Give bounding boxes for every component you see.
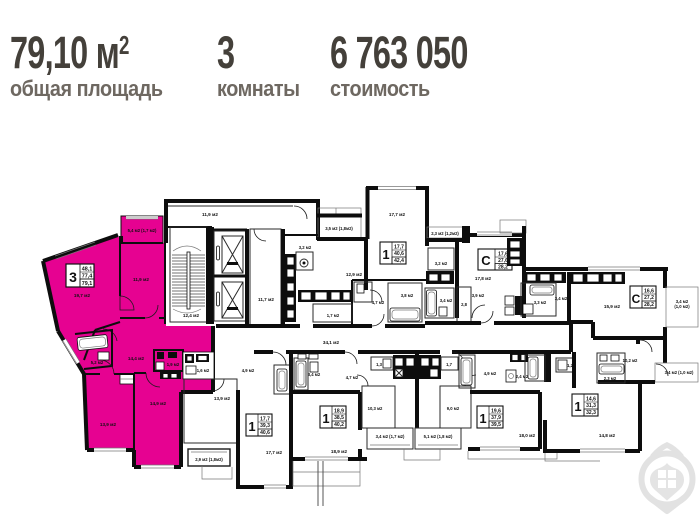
svg-text:3,4 м2 (1,7 м2): 3,4 м2 (1,7 м2) [376,434,405,439]
svg-text:1,7 м2: 1,7 м2 [327,313,340,318]
svg-text:38,5: 38,5 [334,415,344,421]
svg-text:2,8: 2,8 [461,302,467,307]
svg-text:16,6: 16,6 [644,289,654,295]
svg-text:1: 1 [479,411,486,426]
svg-text:(1,0 м2): (1,0 м2) [674,304,690,309]
svg-text:12,4 м2: 12,4 м2 [183,313,200,318]
svg-text:18,9: 18,9 [334,409,344,415]
svg-text:40,6: 40,6 [260,430,270,436]
svg-text:4,9 м2: 4,9 м2 [484,371,497,376]
svg-text:1: 1 [322,411,329,426]
svg-text:39,5: 39,5 [491,422,501,428]
svg-text:С: С [481,253,491,268]
svg-text:10,3 м2: 10,3 м2 [368,406,383,411]
svg-text:37,9: 37,9 [491,415,501,421]
svg-text:17,7 м2: 17,7 м2 [266,450,283,455]
svg-text:48,1: 48,1 [82,267,93,273]
svg-text:14,9 м2: 14,9 м2 [150,401,167,406]
svg-text:3,2 м2: 3,2 м2 [435,261,448,266]
svg-text:3,4 м2 (1,0 м2): 3,4 м2 (1,0 м2) [665,370,694,375]
svg-text:14,6: 14,6 [586,397,596,403]
svg-text:3,4 м2: 3,4 м2 [555,296,568,301]
svg-text:1,9 м2: 1,9 м2 [167,362,180,367]
svg-text:13,9 м2: 13,9 м2 [214,396,231,401]
svg-text:14,4 м2: 14,4 м2 [128,356,145,361]
svg-text:19,7 м2: 19,7 м2 [74,293,91,298]
svg-text:5,1 м2 (1,8 м2): 5,1 м2 (1,8 м2) [424,434,453,439]
svg-text:28,2: 28,2 [644,302,654,308]
svg-text:18,0 м2: 18,0 м2 [519,433,536,438]
svg-text:40,2: 40,2 [334,422,344,428]
svg-text:2,4 м2: 2,4 м2 [516,374,529,379]
svg-text:3,4 м2: 3,4 м2 [440,298,453,303]
svg-text:1: 1 [574,399,581,414]
svg-text:2,3 м2 (1,2м2): 2,3 м2 (1,2м2) [431,231,459,236]
svg-text:4,7 м2: 4,7 м2 [346,375,359,380]
svg-text:1: 1 [382,247,389,262]
svg-text:3,5 м2 (1,8м2): 3,5 м2 (1,8м2) [325,226,353,231]
svg-text:1,6 м2: 1,6 м2 [197,368,210,373]
svg-text:18,9 м2: 18,9 м2 [331,449,348,454]
svg-text:13,9 м2: 13,9 м2 [100,422,117,427]
svg-text:39,3: 39,3 [260,423,270,429]
svg-text:15,9 м2: 15,9 м2 [604,304,621,309]
svg-text:79,1: 79,1 [82,281,93,287]
svg-text:12,9 м2: 12,9 м2 [346,272,363,277]
svg-text:11,9 м2: 11,9 м2 [202,212,218,217]
svg-text:17,7 м2: 17,7 м2 [389,212,406,217]
svg-text:27,2: 27,2 [644,295,654,301]
svg-text:17,6: 17,6 [498,252,508,258]
svg-text:1: 1 [248,419,255,434]
svg-text:3,9 м2: 3,9 м2 [472,293,485,298]
svg-text:4,9 м2: 4,9 м2 [242,368,255,373]
svg-text:3,2 м2: 3,2 м2 [299,245,312,250]
svg-text:4,7 м2: 4,7 м2 [372,300,385,305]
svg-text:17,7: 17,7 [260,417,270,423]
svg-text:1,3: 1,3 [376,362,382,367]
svg-text:1,7: 1,7 [446,362,452,367]
svg-text:3: 3 [69,269,77,285]
svg-text:2,9 м2 (1,8м2): 2,9 м2 (1,8м2) [195,457,223,462]
svg-text:3,3 м2: 3,3 м2 [534,300,547,305]
svg-text:9,0 м2: 9,0 м2 [447,406,460,411]
svg-text:34,1 м2: 34,1 м2 [323,340,340,345]
svg-text:17,8 м2: 17,8 м2 [475,276,492,281]
svg-text:5,4 м2 (1,7 м2): 5,4 м2 (1,7 м2) [128,228,157,233]
svg-text:42,4: 42,4 [394,258,404,264]
svg-text:11,7 м2: 11,7 м2 [258,297,274,302]
svg-text:40,6: 40,6 [394,251,404,257]
svg-text:32,3: 32,3 [586,410,596,416]
svg-text:5,2 м2: 5,2 м2 [91,360,104,365]
svg-text:3,8 м2: 3,8 м2 [401,293,414,298]
svg-text:С: С [632,292,641,306]
svg-text:3,4 м2: 3,4 м2 [308,372,321,377]
svg-text:2,3 м2: 2,3 м2 [604,376,617,381]
svg-text:31,3: 31,3 [586,403,596,409]
svg-text:19,6: 19,6 [491,409,501,415]
svg-text:17,7: 17,7 [394,245,404,251]
svg-text:14,8 м2: 14,8 м2 [599,433,616,438]
svg-text:11,9 м2: 11,9 м2 [133,277,149,282]
